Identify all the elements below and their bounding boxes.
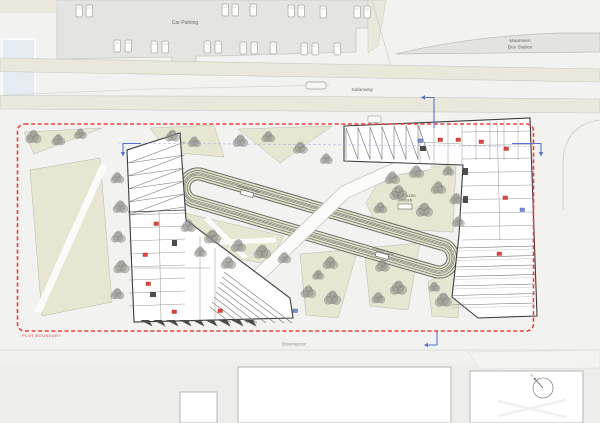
bus-station-label-2: Bus Station <box>508 45 533 51</box>
car-icon <box>76 5 83 17</box>
neighbor-building <box>470 371 583 423</box>
stair-core <box>420 146 426 151</box>
room-chip-red <box>497 252 502 256</box>
car-icon <box>298 5 305 17</box>
bisonspoor-label: Bisonspoor <box>282 342 306 348</box>
car-icon <box>312 43 319 55</box>
room-chip-blue <box>418 139 423 143</box>
site-plan-drawing: Car Parking Safariweg Maarssen Bus Stati… <box>0 0 600 423</box>
room-chip-blue <box>520 208 525 212</box>
car-icon <box>368 116 381 123</box>
car-icon <box>114 40 121 52</box>
room-chip-red <box>143 253 148 257</box>
car-icon <box>215 41 222 53</box>
car-icon <box>251 42 258 54</box>
beige-strip-topleft <box>0 0 56 13</box>
context-south: Bisonspoor N <box>0 342 600 423</box>
site-plan-page: Car Parking Safariweg Maarssen Bus Stati… <box>0 0 600 423</box>
car-icon <box>151 41 158 53</box>
room-chip-red <box>503 196 508 200</box>
bus-icon <box>306 82 326 89</box>
car-icon <box>320 6 327 18</box>
car-icon <box>232 4 239 16</box>
car-icon <box>354 6 361 18</box>
room-chip-red <box>438 138 443 142</box>
stair-core <box>463 196 468 203</box>
neighbor-building <box>180 392 217 423</box>
stair-core <box>172 240 177 246</box>
neighbor-building <box>238 367 451 423</box>
stair-core <box>463 168 468 175</box>
building-slab <box>468 350 600 369</box>
compass-needle-tip <box>534 378 536 380</box>
room-chip-blue <box>293 309 298 313</box>
car-icon <box>204 41 211 53</box>
room-chip-red <box>218 309 223 313</box>
car-icon <box>301 43 308 55</box>
room-chip-red <box>456 138 461 142</box>
car-icon <box>162 41 169 53</box>
car-icon <box>86 5 93 17</box>
safariweg-label: Safariweg <box>351 87 373 93</box>
car-parking-label: Car Parking <box>172 20 199 26</box>
room-chip-red <box>146 282 151 286</box>
area-chip <box>398 204 412 209</box>
car-icon <box>288 5 295 17</box>
room-chip-red <box>154 222 159 226</box>
room-chip-red <box>172 310 177 314</box>
car-icon <box>125 40 132 52</box>
stair-core <box>150 292 156 297</box>
plot-boundary-label: PLOT BOUNDARY <box>22 333 61 338</box>
car-icon <box>250 4 257 16</box>
car-icon <box>240 42 247 54</box>
car-icon <box>222 4 229 16</box>
room-chip-red <box>504 147 509 151</box>
car-icon <box>364 6 371 18</box>
car-icon <box>270 42 277 54</box>
bus-station-label-1: Maarssen <box>509 38 530 44</box>
room-chip-red <box>479 140 484 144</box>
car-icon <box>334 43 341 55</box>
